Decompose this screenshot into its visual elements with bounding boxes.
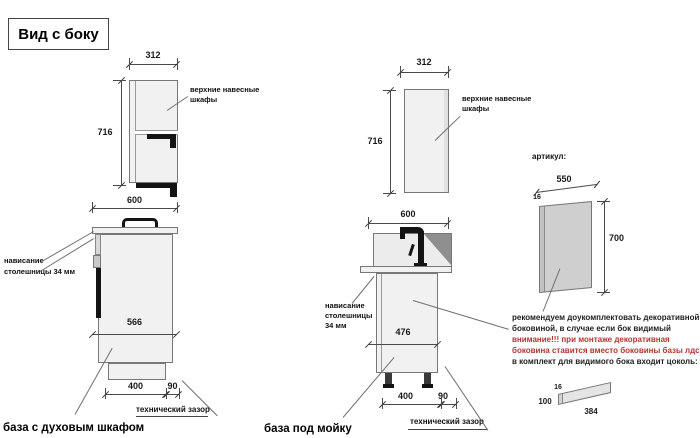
caption-base-sink: база под мойку xyxy=(264,423,352,435)
note-line-1: рекомендуем доукомплектовать декоративно… xyxy=(512,313,699,322)
dim-plinth-thickness: 16 xyxy=(551,384,565,391)
dimline-base-left-top xyxy=(92,208,177,209)
dim-base-mid-top: 600 xyxy=(368,209,448,219)
upper-left-cabinet-label: верхние навесные xyxy=(190,85,259,96)
dimline-base-left-depth xyxy=(92,334,177,335)
dim-base-left-plinth: 400 xyxy=(105,381,166,391)
note-line-4-warning: боковина ставится вместо боковины базы л… xyxy=(512,346,700,355)
countertop-left xyxy=(92,227,178,234)
dimline-upper-left-width xyxy=(129,64,177,65)
dim-panel-thickness: 16 xyxy=(530,194,544,201)
oven-control-panel xyxy=(95,234,101,255)
side-view-drawing: Вид с боку 312 716 верхние навесные шкаф… xyxy=(0,0,700,438)
dim-panel-height: 700 xyxy=(609,233,624,243)
dim-upper-mid-height: 716 xyxy=(363,136,387,146)
base-mid-cabinet-body xyxy=(376,273,438,373)
base-left-cabinet-body xyxy=(98,234,173,363)
plinth-left xyxy=(108,363,166,380)
dim-upper-left-height: 716 xyxy=(93,127,117,137)
leader-line xyxy=(352,276,375,304)
decorative-side-panel-drawing xyxy=(539,201,592,293)
countertop-mid xyxy=(360,266,452,273)
upper-mid-cabinet-label: верхние навесные xyxy=(462,94,531,105)
page-title: Вид с боку xyxy=(8,18,109,50)
upper-mid-cabinet-body xyxy=(404,89,449,193)
article-header: артикул: xyxy=(532,152,566,163)
oven-door-glass xyxy=(96,268,101,318)
overhang-label-mid: нависание xyxy=(325,301,365,312)
dimline-upper-left-height xyxy=(121,80,122,185)
oven-door-handle-icon xyxy=(93,255,101,268)
dim-upper-left-width: 312 xyxy=(129,50,177,60)
leader-line xyxy=(40,231,94,263)
dim-plinth-height: 100 xyxy=(536,397,554,406)
dim-base-left-gap: 90 xyxy=(166,381,179,391)
caption-base-oven: база с духовым шкафом xyxy=(3,422,144,434)
note-line-2: боковиной, в случае если бок видимый xyxy=(512,324,671,333)
note-line-3-warning: внимание!!! при монтаже декоративная xyxy=(512,335,670,344)
plinth-drawing xyxy=(558,382,611,405)
dim-plinth-length: 384 xyxy=(578,407,604,416)
dim-base-left-top: 600 xyxy=(92,195,177,205)
dim-upper-mid-width: 312 xyxy=(400,57,448,67)
dim-base-mid-plinth: 400 xyxy=(382,391,429,401)
note-line-5: в комплект для видимого бока входит цоко… xyxy=(512,357,698,366)
dim-base-mid-gap: 90 xyxy=(434,391,452,401)
dim-base-mid-depth: 476 xyxy=(368,327,438,337)
overhang-label-left: нависание xyxy=(4,256,44,267)
gap-label-left: технический зазор xyxy=(136,405,210,416)
dim-base-left-depth: 566 xyxy=(92,317,177,327)
gap-label-mid: технический зазор xyxy=(410,417,484,428)
dim-panel-width: 550 xyxy=(549,174,579,184)
